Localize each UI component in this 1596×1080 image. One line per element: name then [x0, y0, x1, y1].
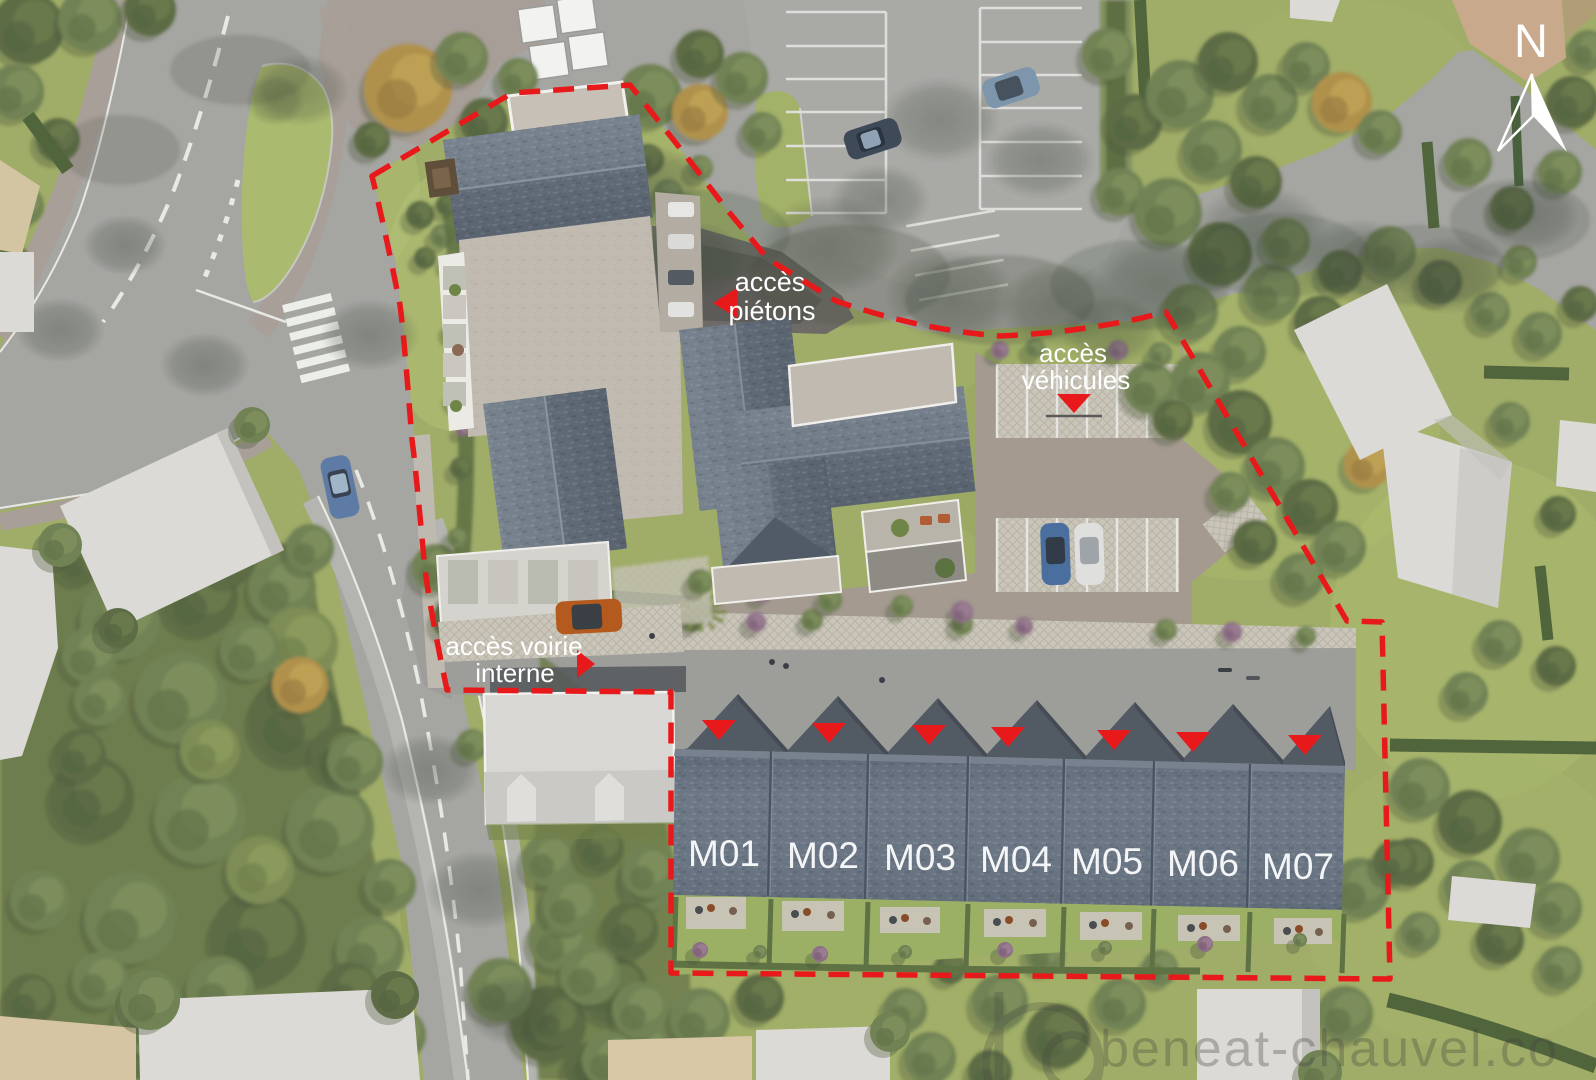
- svg-text:beneat-chauvel.co: beneat-chauvel.co: [1100, 1020, 1559, 1078]
- svg-text:interne: interne: [475, 658, 555, 688]
- svg-text:véhicules: véhicules: [1022, 365, 1130, 395]
- svg-text:M02: M02: [787, 835, 859, 876]
- svg-text:accès: accès: [735, 267, 806, 297]
- svg-text:piétons: piétons: [728, 296, 815, 326]
- svg-text:M06: M06: [1167, 843, 1239, 884]
- svg-text:accès voirie: accès voirie: [445, 631, 582, 661]
- svg-text:M07: M07: [1262, 846, 1334, 887]
- svg-text:accès: accès: [1039, 338, 1107, 368]
- svg-text:M04: M04: [980, 839, 1052, 880]
- svg-text:M05: M05: [1071, 841, 1143, 882]
- svg-text:M03: M03: [884, 837, 956, 878]
- svg-text:N: N: [1514, 14, 1548, 67]
- svg-text:M01: M01: [688, 833, 760, 874]
